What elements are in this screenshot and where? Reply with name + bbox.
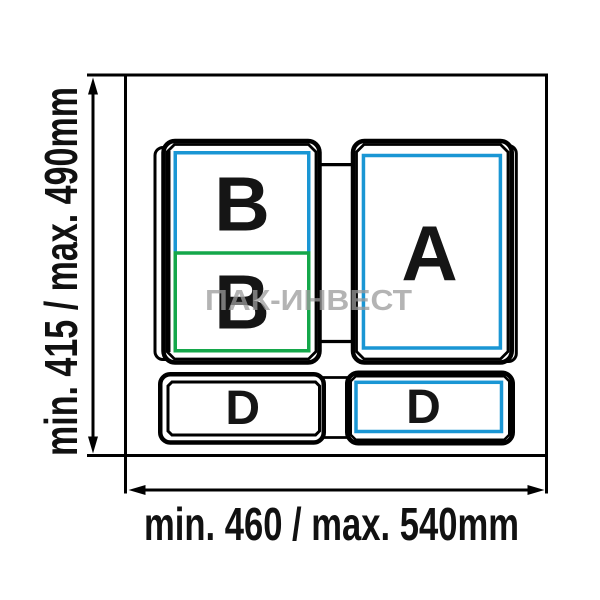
svg-text:min. 415 / max. 490mm: min. 415 / max. 490mm bbox=[35, 87, 87, 456]
svg-text:ПАК-ИНВЕСТ: ПАК-ИНВЕСТ bbox=[205, 285, 412, 317]
svg-text:A: A bbox=[401, 209, 457, 297]
svg-text:D: D bbox=[406, 381, 441, 434]
svg-text:min. 460 / max. 540mm: min. 460 / max. 540mm bbox=[144, 498, 519, 550]
svg-text:B: B bbox=[214, 162, 270, 248]
svg-text:D: D bbox=[225, 382, 260, 435]
